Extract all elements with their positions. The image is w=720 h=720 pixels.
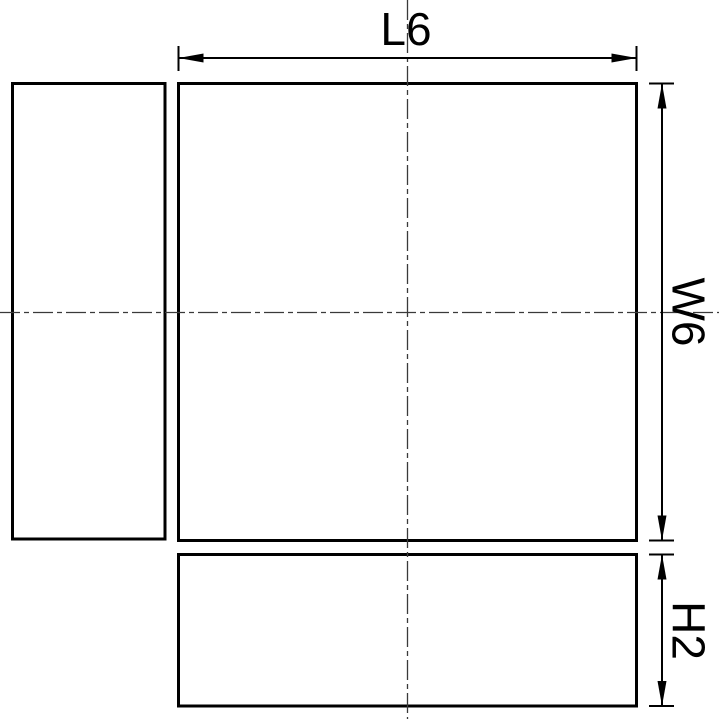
dimension-label-height: H2 <box>663 601 715 660</box>
dimension-label-width: W6 <box>663 278 715 347</box>
arrowhead-right <box>612 54 637 63</box>
dimension-width: W6 <box>649 84 715 541</box>
arrowhead-down <box>658 516 667 541</box>
arrowhead-left <box>179 54 204 63</box>
arrowhead-down <box>658 681 667 706</box>
engineering-drawing: L6 W6 H2 <box>0 0 720 720</box>
orthographic-views-svg: L6 W6 H2 <box>0 0 720 720</box>
arrowhead-up <box>658 555 667 580</box>
dimension-height: H2 <box>649 555 715 707</box>
dimension-label-length: L6 <box>380 3 431 55</box>
side-view-rect <box>13 84 166 540</box>
arrowhead-up <box>658 84 667 109</box>
